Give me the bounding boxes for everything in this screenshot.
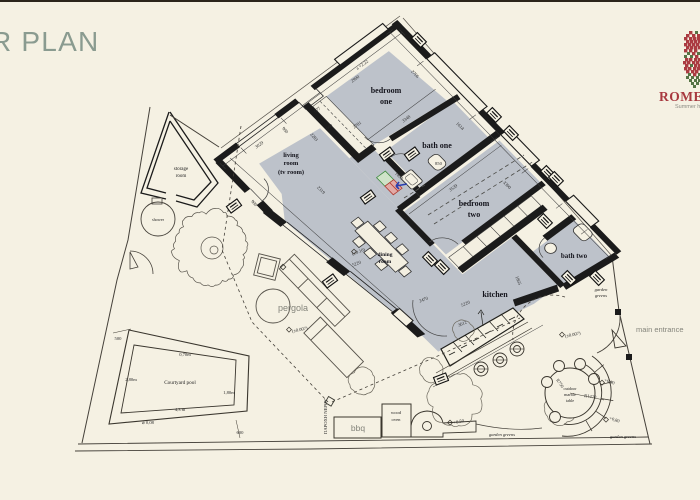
svg-text:bedroom: bedroom [371, 86, 402, 95]
svg-text:garden greens: garden greens [489, 432, 515, 437]
svg-text:Summer house: Summer house [675, 104, 700, 110]
svg-text:bedroom: bedroom [459, 199, 490, 208]
svg-text:main entrance: main entrance [636, 325, 684, 334]
svg-text:600: 600 [237, 430, 245, 435]
svg-text:Courtyard pool: Courtyard pool [164, 380, 196, 386]
svg-text:garden greens: garden greens [610, 434, 636, 439]
svg-text:500: 500 [115, 336, 123, 341]
svg-text:greens: greens [595, 293, 607, 298]
svg-text:garden: garden [595, 287, 609, 292]
svg-text:FLOOR PLAN: FLOOR PLAN [0, 26, 99, 57]
svg-text:(tv room): (tv room) [278, 169, 304, 176]
svg-text:two: two [468, 210, 480, 219]
svg-text:bath two: bath two [561, 252, 588, 260]
svg-text:bbq: bbq [351, 423, 365, 433]
svg-text:pergola: pergola [278, 303, 308, 313]
svg-text:room: room [379, 259, 392, 265]
svg-text:shower: shower [152, 217, 165, 222]
svg-text:marble: marble [564, 392, 576, 397]
svg-text:850: 850 [435, 161, 443, 166]
svg-text:living: living [283, 152, 299, 159]
svg-text:one: one [380, 97, 392, 106]
svg-text:dining: dining [378, 252, 393, 258]
svg-text:table: table [566, 398, 574, 403]
svg-text:room: room [284, 160, 299, 167]
svg-text:bath one: bath one [422, 141, 452, 150]
svg-text:wood: wood [391, 410, 402, 415]
svg-text:ΠΑΡΟΧΗ ΝΕΡΟΥ: ΠΑΡΟΧΗ ΝΕΡΟΥ [323, 398, 328, 434]
svg-text:kitchen: kitchen [482, 290, 508, 299]
svg-text:ROMELIA: ROMELIA [659, 89, 700, 104]
svg-text:outdoor: outdoor [563, 386, 577, 391]
svg-text:storage: storage [174, 167, 189, 172]
svg-text:oven: oven [392, 417, 402, 422]
svg-text:room: room [176, 174, 187, 179]
